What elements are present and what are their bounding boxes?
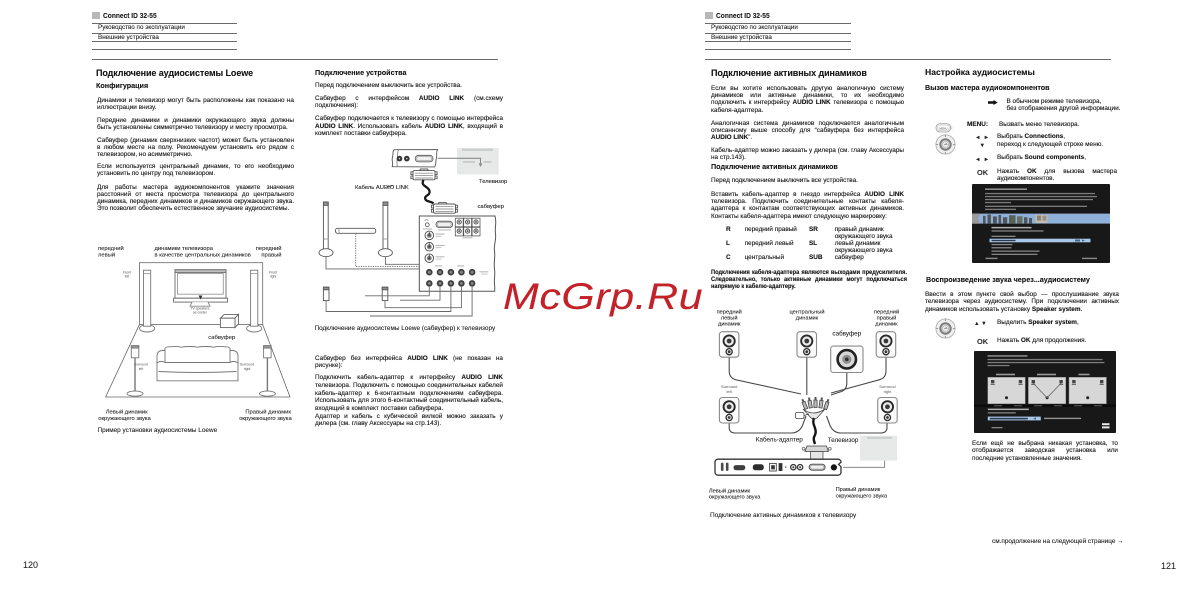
svg-text:динамик: динамик: [796, 316, 819, 322]
svg-text:центральный: центральный: [789, 309, 824, 316]
svg-text:MENU: MENU: [939, 126, 947, 130]
svg-text:передний: передний: [256, 245, 282, 252]
svg-text:Правый динамик: Правый динамик: [836, 486, 881, 493]
svg-text:динамик: динамик: [875, 322, 898, 328]
svg-text:Левый динамик: Левый динамик: [709, 487, 751, 494]
svg-text:left: left: [139, 367, 144, 371]
svg-text:правый: правый: [261, 251, 281, 258]
svg-text:Телевизор: Телевизор: [828, 437, 859, 444]
svg-text:окружающего звука: окружающего звука: [709, 495, 761, 501]
svg-text:окружающего звука: окружающего звука: [836, 493, 888, 499]
svg-text:сабвуфер: сабвуфер: [208, 335, 236, 341]
svg-text:передний: передний: [98, 245, 124, 252]
svg-text:Кабель-адаптер: Кабель-адаптер: [756, 435, 803, 443]
svg-text:right: right: [244, 367, 251, 371]
svg-text:окружающего звука: окружающего звука: [239, 416, 292, 422]
svg-text:передний: передний: [717, 309, 742, 316]
svg-text:динамик: динамик: [718, 322, 741, 328]
svg-text:динамики телевизора: динамики телевизора: [155, 246, 214, 252]
svg-text:левый: левый: [721, 315, 738, 322]
svg-text:right: right: [270, 275, 277, 279]
svg-text:as center: as center: [193, 310, 208, 314]
svg-text:в качестве центральных динамик: в качестве центральных динамиков: [155, 252, 251, 258]
svg-text:left: left: [125, 275, 130, 279]
svg-text:передний: передний: [874, 309, 899, 316]
svg-text:left: left: [727, 389, 733, 394]
svg-text:окружающего звука: окружающего звука: [98, 416, 151, 422]
svg-text:Левый динамик: Левый динамик: [106, 408, 148, 415]
svg-text:сабвуфер: сабвуфер: [832, 329, 861, 337]
svg-text:левый: левый: [98, 251, 115, 258]
svg-text:right: right: [884, 389, 893, 394]
svg-text:правый: правый: [877, 315, 897, 322]
svg-text:Правый динамик: Правый динамик: [245, 408, 291, 415]
